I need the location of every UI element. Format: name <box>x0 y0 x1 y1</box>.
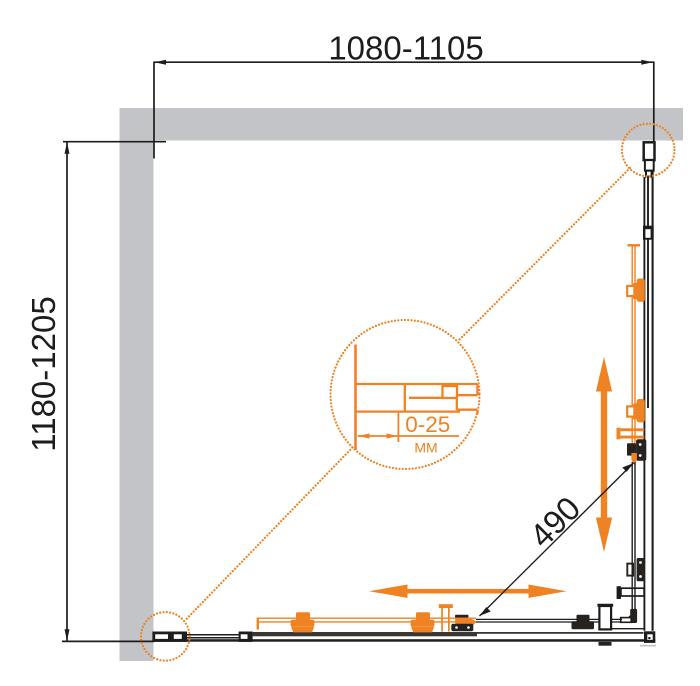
svg-text:ММ: ММ <box>414 440 437 456</box>
svg-text:0-25: 0-25 <box>405 412 450 437</box>
svg-text:1180-1205: 1180-1205 <box>25 296 62 451</box>
svg-text:1080-1105: 1080-1105 <box>328 30 483 67</box>
